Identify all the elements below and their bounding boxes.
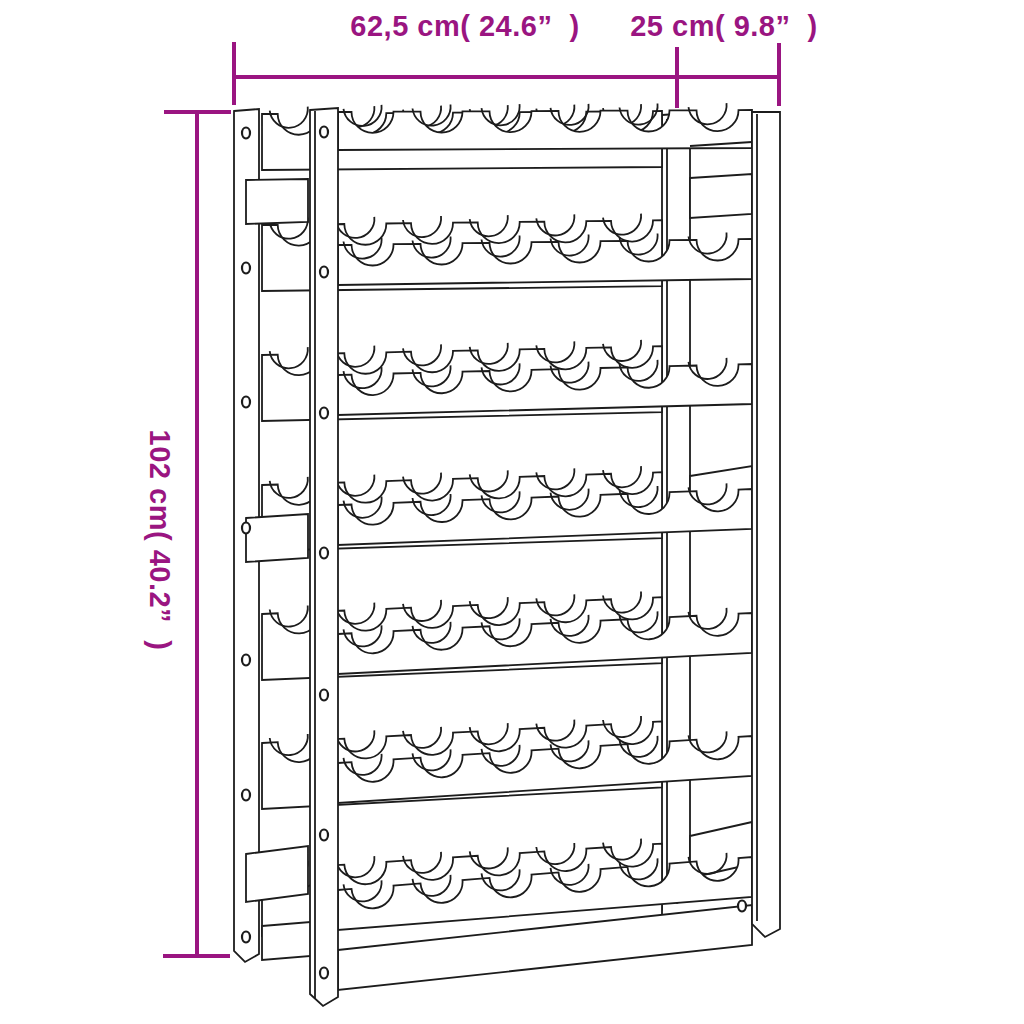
screw-icon	[320, 127, 328, 138]
screw-icon	[320, 830, 328, 841]
screw-icon	[242, 128, 250, 139]
screw-icon	[320, 968, 328, 979]
screw-icon	[242, 397, 250, 408]
screw-icon	[242, 655, 250, 666]
screw-icon	[320, 548, 328, 559]
screw-icon	[320, 408, 328, 419]
width-dimension-label: 62,5 cm( 24.6” )	[330, 6, 600, 46]
screw-icon	[242, 932, 250, 943]
depth-dimension-label: 25 cm( 9.8” )	[614, 6, 834, 46]
screw-icon	[242, 790, 250, 801]
screw-icon	[320, 690, 328, 701]
product-dimension-diagram: 62,5 cm( 24.6” ) 25 cm( 9.8” ) 102 cm( 4…	[0, 0, 1024, 1024]
height-dimension-label: 102 cm( 40.2” )	[140, 390, 180, 690]
screw-icon	[242, 263, 250, 274]
screw-icon	[738, 901, 746, 912]
screw-icon	[242, 523, 250, 534]
screw-icon	[320, 267, 328, 278]
